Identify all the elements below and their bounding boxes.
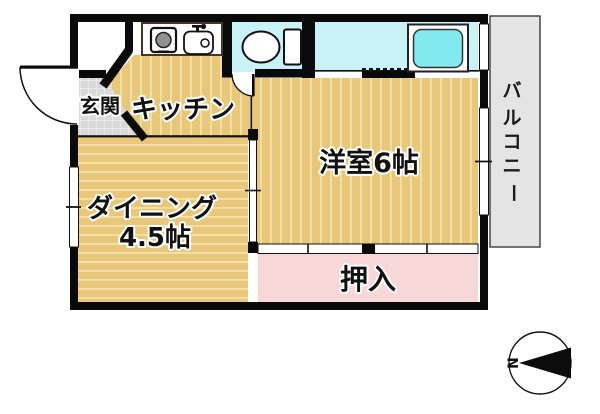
kitchen-dining-boundary-line <box>78 135 251 137</box>
dining-label-line2: 4.5帖 <box>119 223 191 253</box>
entrance-label: 玄関 <box>80 94 120 118</box>
compass: N <box>506 332 571 394</box>
north-label: N <box>506 357 522 369</box>
floor-plan-svg: N 玄関 キッチン 洋室6帖 ダイニング 4.5帖 押入 バ ル コ ニ ー <box>0 0 600 414</box>
closet-label: 押入 <box>340 263 396 296</box>
dining-label-line1: ダイニング <box>87 193 217 224</box>
balcony-label: バ ル コ ニ ー <box>502 80 524 203</box>
sliding-door-closet <box>258 244 478 254</box>
bathtub-icon <box>408 25 468 72</box>
dining-window <box>66 167 81 247</box>
bath-window <box>480 24 489 70</box>
svg-text:ニ: ニ <box>502 155 521 177</box>
svg-text:コ: コ <box>502 131 521 153</box>
svg-text:バ: バ <box>502 80 521 102</box>
entrance-door-arc <box>20 66 78 125</box>
floor-plan: N 玄関 キッチン 洋室6帖 ダイニング 4.5帖 押入 バ ル コ ニ ー <box>0 0 600 414</box>
toilet-icon <box>243 30 302 65</box>
svg-text:ー: ー <box>502 183 524 202</box>
western-room-label: 洋室6帖 <box>319 147 419 179</box>
svg-text:ル: ル <box>502 107 521 129</box>
stove-burner-icon <box>151 28 176 53</box>
kitchen-label: キッチン <box>131 95 235 125</box>
